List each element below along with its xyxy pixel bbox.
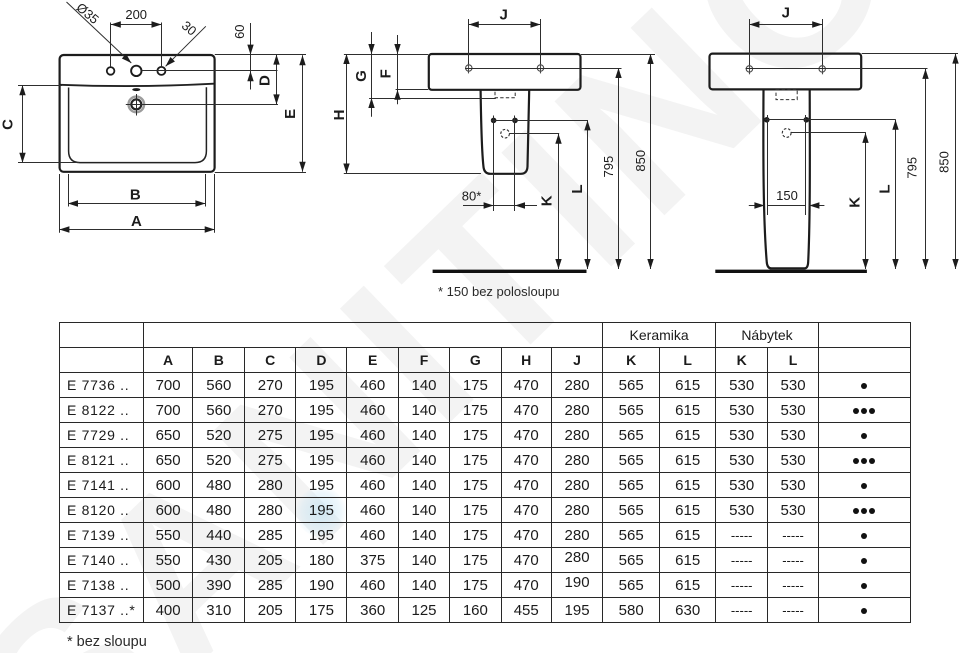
svg-text:K: K [538, 195, 555, 206]
svg-text:60: 60 [232, 24, 247, 38]
svg-text:150: 150 [776, 188, 798, 203]
svg-text:80*: 80* [462, 189, 482, 204]
svg-text:Ø35: Ø35 [73, 0, 101, 27]
svg-text:L: L [877, 184, 894, 193]
svg-text:795: 795 [601, 156, 616, 178]
svg-text:A: A [131, 213, 142, 230]
svg-text:G: G [353, 70, 370, 82]
svg-text:795: 795 [905, 157, 920, 179]
svg-text:B: B [130, 187, 141, 204]
svg-text:850: 850 [633, 150, 648, 172]
svg-text:K: K [847, 197, 864, 208]
svg-text:E: E [282, 109, 299, 119]
svg-text:C: C [0, 119, 16, 130]
svg-text:850: 850 [937, 151, 952, 173]
svg-text:L: L [569, 184, 586, 193]
svg-text:F: F [377, 69, 394, 78]
svg-text:D: D [256, 75, 273, 86]
svg-text:H: H [331, 109, 348, 120]
svg-text:200: 200 [125, 7, 147, 22]
svg-text:J: J [500, 7, 508, 24]
svg-text:J: J [782, 5, 790, 22]
